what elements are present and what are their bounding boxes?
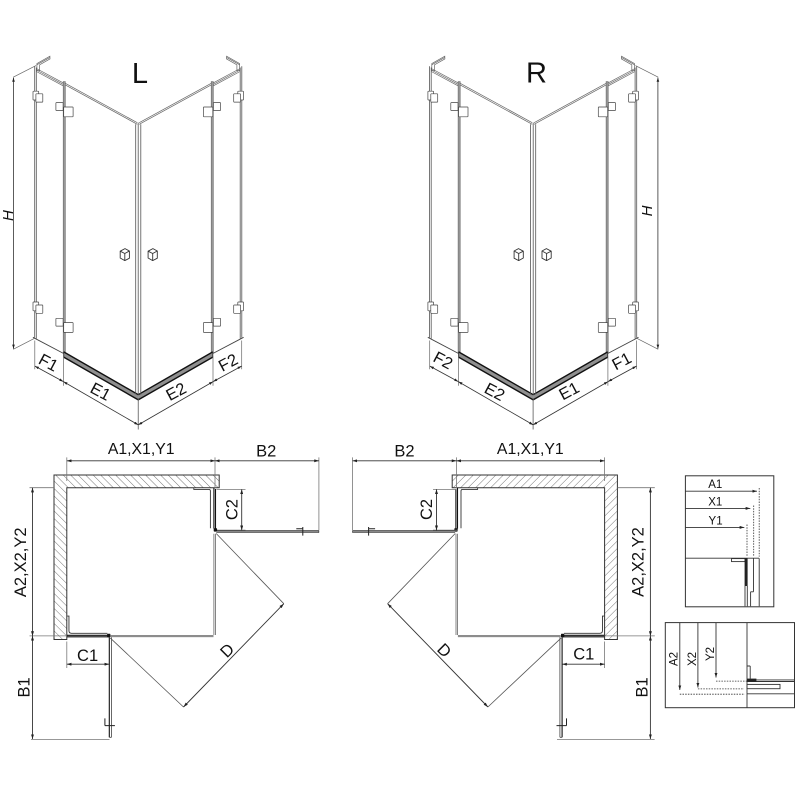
svg-text:H: H (0, 210, 17, 221)
svg-text:Y2: Y2 (705, 647, 717, 661)
svg-text:A2: A2 (669, 652, 681, 666)
svg-text:A2,X2,Y2: A2,X2,Y2 (630, 527, 648, 597)
svg-text:F1: F1 (609, 349, 634, 374)
svg-text:B2: B2 (394, 443, 414, 461)
svg-text:X2: X2 (687, 652, 699, 666)
svg-text:B2: B2 (256, 443, 276, 461)
svg-text:F1: F1 (36, 351, 61, 376)
svg-text:A1,X1,Y1: A1,X1,Y1 (108, 441, 175, 458)
svg-text:H: H (639, 205, 656, 216)
svg-text:L: L (132, 58, 148, 90)
svg-text:X1: X1 (708, 497, 722, 509)
svg-text:C2: C2 (418, 499, 436, 520)
svg-text:A2,X2,Y2: A2,X2,Y2 (12, 527, 30, 597)
svg-text:D: D (433, 640, 454, 661)
svg-text:R: R (526, 58, 547, 90)
svg-text:D: D (217, 640, 238, 661)
svg-text:C2: C2 (223, 499, 241, 520)
svg-text:Y1: Y1 (709, 516, 723, 528)
svg-text:C1: C1 (573, 645, 594, 663)
svg-text:F2: F2 (430, 348, 455, 373)
svg-text:A1: A1 (708, 479, 722, 491)
svg-text:B1: B1 (633, 677, 651, 697)
svg-text:F2: F2 (216, 351, 241, 376)
svg-text:B1: B1 (15, 677, 33, 697)
svg-text:C1: C1 (77, 647, 98, 665)
svg-text:A1,X1,Y1: A1,X1,Y1 (497, 441, 564, 458)
